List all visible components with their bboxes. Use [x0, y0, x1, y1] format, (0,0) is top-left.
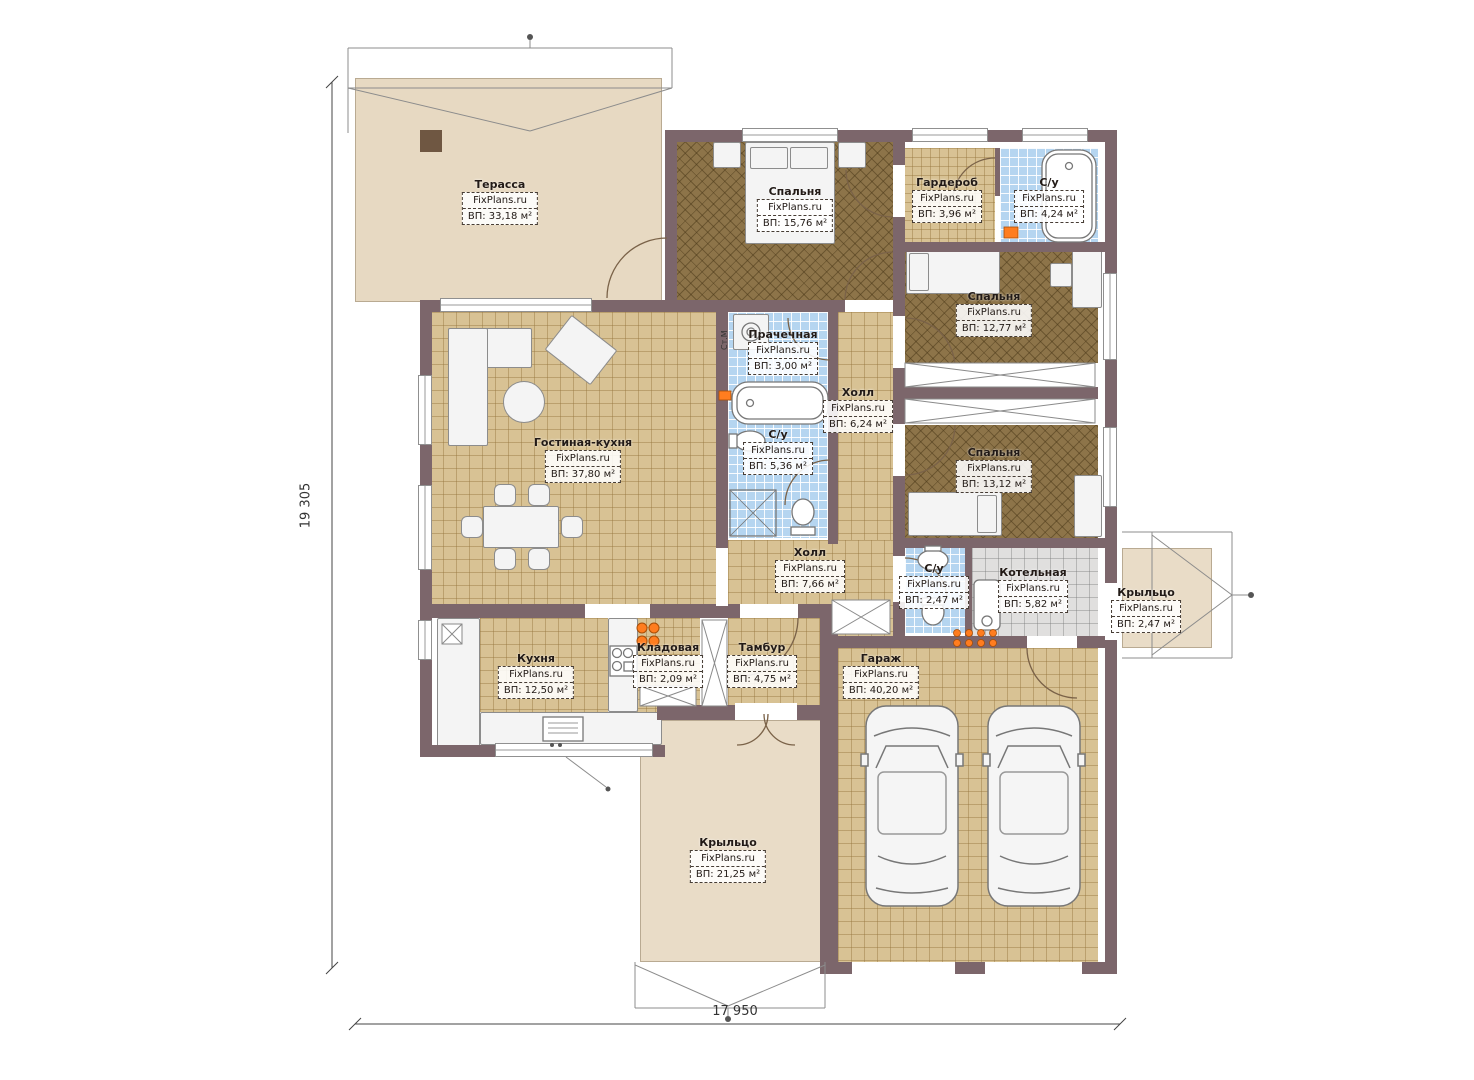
site-watermark: FixPlans.ru	[913, 191, 981, 206]
chair	[528, 548, 550, 570]
room-label-bathroom-top: С/у FixPlans.ru ВП: 4,24 м²	[1014, 176, 1084, 223]
room-name: Гардероб	[912, 176, 982, 189]
door-opening-bedroom2	[893, 316, 905, 368]
dimension-width: 17 950	[700, 1004, 770, 1019]
door-opening-bedroom-wardrobe	[893, 165, 905, 217]
room-label-tambour: Тамбур FixPlans.ru ВП: 4,75 м²	[727, 641, 797, 688]
room-label-pantry: Кладовая FixPlans.ru ВП: 2,09 м²	[633, 641, 703, 688]
door-opening-bedroom3	[893, 424, 905, 476]
room-label-bedroom2: Спальня FixPlans.ru ВП: 12,77 м²	[956, 290, 1032, 337]
door-opening-tambour-top	[740, 604, 798, 618]
room-label-box: FixPlans.ru ВП: 4,24 м²	[1014, 190, 1084, 223]
room-name: С/у	[743, 428, 813, 441]
window-bedroom2	[1103, 273, 1117, 360]
room-area: ВП: 33,18 м²	[463, 208, 537, 224]
room-label-box: FixPlans.ru ВП: 6,24 м²	[823, 400, 893, 433]
door-opening-living-kitchen	[585, 604, 650, 618]
site-watermark: FixPlans.ru	[844, 667, 918, 682]
room-name: С/у	[1014, 176, 1084, 189]
site-watermark: FixPlans.ru	[1112, 601, 1180, 616]
site-watermark: FixPlans.ru	[728, 656, 796, 671]
dining-table	[483, 506, 559, 548]
room-name: Прачечная	[748, 328, 818, 341]
room-area: ВП: 7,66 м²	[776, 576, 844, 592]
coffee-table	[503, 381, 545, 423]
room-name: Кладовая	[633, 641, 703, 654]
room-name: Холл	[775, 546, 845, 559]
room-name: Холл	[823, 386, 893, 399]
room-label-box: FixPlans.ru ВП: 5,36 м²	[743, 442, 813, 475]
wall-bedroom3-bottom	[895, 538, 1105, 548]
pillow	[977, 495, 997, 533]
room-name: Тамбур	[727, 641, 797, 654]
wall-closet-divider	[903, 387, 1098, 399]
sofa	[448, 328, 488, 446]
room-label-terrace: Терасса FixPlans.ru ВП: 33,18 м²	[462, 178, 538, 225]
site-watermark: FixPlans.ru	[957, 461, 1031, 476]
room-area: ВП: 3,00 м²	[749, 358, 817, 374]
nightstand	[838, 142, 866, 168]
nightstand	[713, 142, 741, 168]
door-opening-wardrobe-bath	[995, 196, 1000, 242]
room-label-living-kitchen: Гостиная-кухня FixPlans.ru ВП: 37,80 м²	[534, 436, 632, 483]
site-watermark: FixPlans.ru	[758, 200, 832, 215]
site-watermark: FixPlans.ru	[546, 451, 620, 466]
site-watermark: FixPlans.ru	[691, 851, 765, 866]
floor-plan: Ст.М	[0, 0, 1474, 1080]
room-label-box: FixPlans.ru ВП: 3,96 м²	[912, 190, 982, 223]
site-watermark: FixPlans.ru	[824, 401, 892, 416]
garage-door-2	[985, 962, 1082, 974]
site-watermark: FixPlans.ru	[900, 577, 968, 592]
door-opening-entrance	[735, 703, 797, 720]
wall-right	[1105, 130, 1117, 974]
room-area: ВП: 13,12 м²	[957, 476, 1031, 492]
room-name: Крыльцо	[1111, 586, 1181, 599]
room-label-box: FixPlans.ru ВП: 13,12 м²	[956, 460, 1032, 493]
site-watermark: FixPlans.ru	[776, 561, 844, 576]
chair	[461, 516, 483, 538]
chair	[528, 484, 550, 506]
room-area: ВП: 2,47 м²	[1112, 616, 1180, 632]
room-label-bedroom3: Спальня FixPlans.ru ВП: 13,12 м²	[956, 446, 1032, 493]
site-watermark: FixPlans.ru	[749, 343, 817, 358]
room-label-box: FixPlans.ru ВП: 21,25 м²	[690, 850, 766, 883]
room-label-bathroom-low: С/у FixPlans.ru ВП: 2,47 м²	[899, 562, 969, 609]
door-opening-bedroom-hall	[845, 300, 893, 312]
room-name: Кухня	[498, 652, 574, 665]
pillow	[750, 147, 788, 169]
pillow	[909, 253, 929, 291]
room-label-box: FixPlans.ru ВП: 33,18 м²	[462, 192, 538, 225]
window-terrace-slider	[440, 298, 592, 312]
room-label-laundry: Прачечная FixPlans.ru ВП: 3,00 м²	[748, 328, 818, 375]
window-bedroom-master	[742, 128, 838, 142]
room-label-box: FixPlans.ru ВП: 4,75 м²	[727, 655, 797, 688]
room-area: ВП: 37,80 м²	[546, 466, 620, 482]
kitchen-counter-bottom	[480, 712, 662, 745]
room-area: ВП: 12,77 м²	[957, 320, 1031, 336]
door-opening-living-hall	[716, 548, 728, 606]
room-area: ВП: 4,24 м²	[1015, 206, 1083, 222]
window-kitchen-bottom	[495, 743, 653, 757]
room-area: ВП: 12,50 м²	[499, 682, 573, 698]
window-kitchen-left	[418, 620, 432, 660]
chair	[494, 548, 516, 570]
room-label-kitchen: Кухня FixPlans.ru ВП: 12,50 м²	[498, 652, 574, 699]
room-area: ВП: 5,82 м²	[999, 596, 1067, 612]
room-label-box: FixPlans.ru ВП: 15,76 м²	[757, 199, 833, 232]
room-label-box: FixPlans.ru ВП: 7,66 м²	[775, 560, 845, 593]
window-bathroom-top	[1022, 128, 1088, 142]
room-area: ВП: 6,24 м²	[824, 416, 892, 432]
room-label-bathroom-mid: С/у FixPlans.ru ВП: 5,36 м²	[743, 428, 813, 475]
room-label-box: FixPlans.ru ВП: 40,20 м²	[843, 666, 919, 699]
site-watermark: FixPlans.ru	[499, 667, 573, 682]
room-name: Крыльцо	[690, 836, 766, 849]
room-label-box: FixPlans.ru ВП: 2,47 м²	[899, 576, 969, 609]
door-opening-boiler-garage	[1027, 636, 1077, 648]
room-name: Спальня	[757, 185, 833, 198]
room-label-box: FixPlans.ru ВП: 37,80 м²	[545, 450, 621, 483]
window-living-2	[418, 485, 432, 570]
site-watermark: FixPlans.ru	[463, 193, 537, 208]
room-name: Терасса	[462, 178, 538, 191]
wardrobe-cabinet	[1072, 250, 1102, 308]
kitchen-counter-left	[437, 618, 480, 755]
chair	[561, 516, 583, 538]
room-area: ВП: 2,09 м²	[634, 671, 702, 687]
site-watermark: FixPlans.ru	[957, 305, 1031, 320]
room-name: Гараж	[843, 652, 919, 665]
room-label-porch-bottom: Крыльцо FixPlans.ru ВП: 21,25 м²	[690, 836, 766, 883]
room-label-hall-lower: Холл FixPlans.ru ВП: 7,66 м²	[775, 546, 845, 593]
room-name: С/у	[899, 562, 969, 575]
wall-garage-left	[820, 604, 838, 974]
chair	[494, 484, 516, 506]
room-area: ВП: 21,25 м²	[691, 866, 765, 882]
room-name: Спальня	[956, 446, 1032, 459]
room-label-box: FixPlans.ru ВП: 3,00 м²	[748, 342, 818, 375]
window-bedroom3	[1103, 427, 1117, 507]
room-label-box: FixPlans.ru ВП: 12,50 м²	[498, 666, 574, 699]
site-watermark: FixPlans.ru	[1015, 191, 1083, 206]
terrace-post	[420, 130, 442, 152]
room-area: ВП: 5,36 м²	[744, 458, 812, 474]
wall-wardrobe-bottom	[895, 242, 1105, 252]
room-label-garage: Гараж FixPlans.ru ВП: 40,20 м²	[843, 652, 919, 699]
room-label-wardrobe: Гардероб FixPlans.ru ВП: 3,96 м²	[912, 176, 982, 223]
room-label-box: FixPlans.ru ВП: 5,82 м²	[998, 580, 1068, 613]
room-area: ВП: 2,47 м²	[900, 592, 968, 608]
garage-door-1	[852, 962, 955, 974]
site-watermark: FixPlans.ru	[999, 581, 1067, 596]
room-area: ВП: 40,20 м²	[844, 682, 918, 698]
room-label-bedroom-master: Спальня FixPlans.ru ВП: 15,76 м²	[757, 185, 833, 232]
room-label-box: FixPlans.ru ВП: 12,77 м²	[956, 304, 1032, 337]
site-watermark: FixPlans.ru	[744, 443, 812, 458]
bedside-table	[1050, 263, 1072, 287]
room-label-box: FixPlans.ru ВП: 2,47 м²	[1111, 600, 1181, 633]
pillow	[790, 147, 828, 169]
room-area: ВП: 3,96 м²	[913, 206, 981, 222]
room-label-box: FixPlans.ru ВП: 2,09 м²	[633, 655, 703, 688]
wall-left-upper	[665, 130, 677, 312]
room-area: ВП: 15,76 м²	[758, 215, 832, 231]
site-watermark: FixPlans.ru	[634, 656, 702, 671]
room-name: Гостиная-кухня	[534, 436, 632, 449]
room-label-boiler-room: Котельная FixPlans.ru ВП: 5,82 м²	[998, 566, 1068, 613]
washing-machine-label: Ст.М	[720, 314, 729, 350]
window-wardrobe	[912, 128, 988, 142]
dimension-height: 19 305	[299, 476, 314, 536]
wardrobe-cabinet	[1074, 475, 1102, 537]
room-name: Котельная	[998, 566, 1068, 579]
room-label-hall-upper: Холл FixPlans.ru ВП: 6,24 м²	[823, 386, 893, 433]
room-area: ВП: 4,75 м²	[728, 671, 796, 687]
room-label-porch-right: Крыльцо FixPlans.ru ВП: 2,47 м²	[1111, 586, 1181, 633]
window-living-1	[418, 375, 432, 445]
room-name: Спальня	[956, 290, 1032, 303]
